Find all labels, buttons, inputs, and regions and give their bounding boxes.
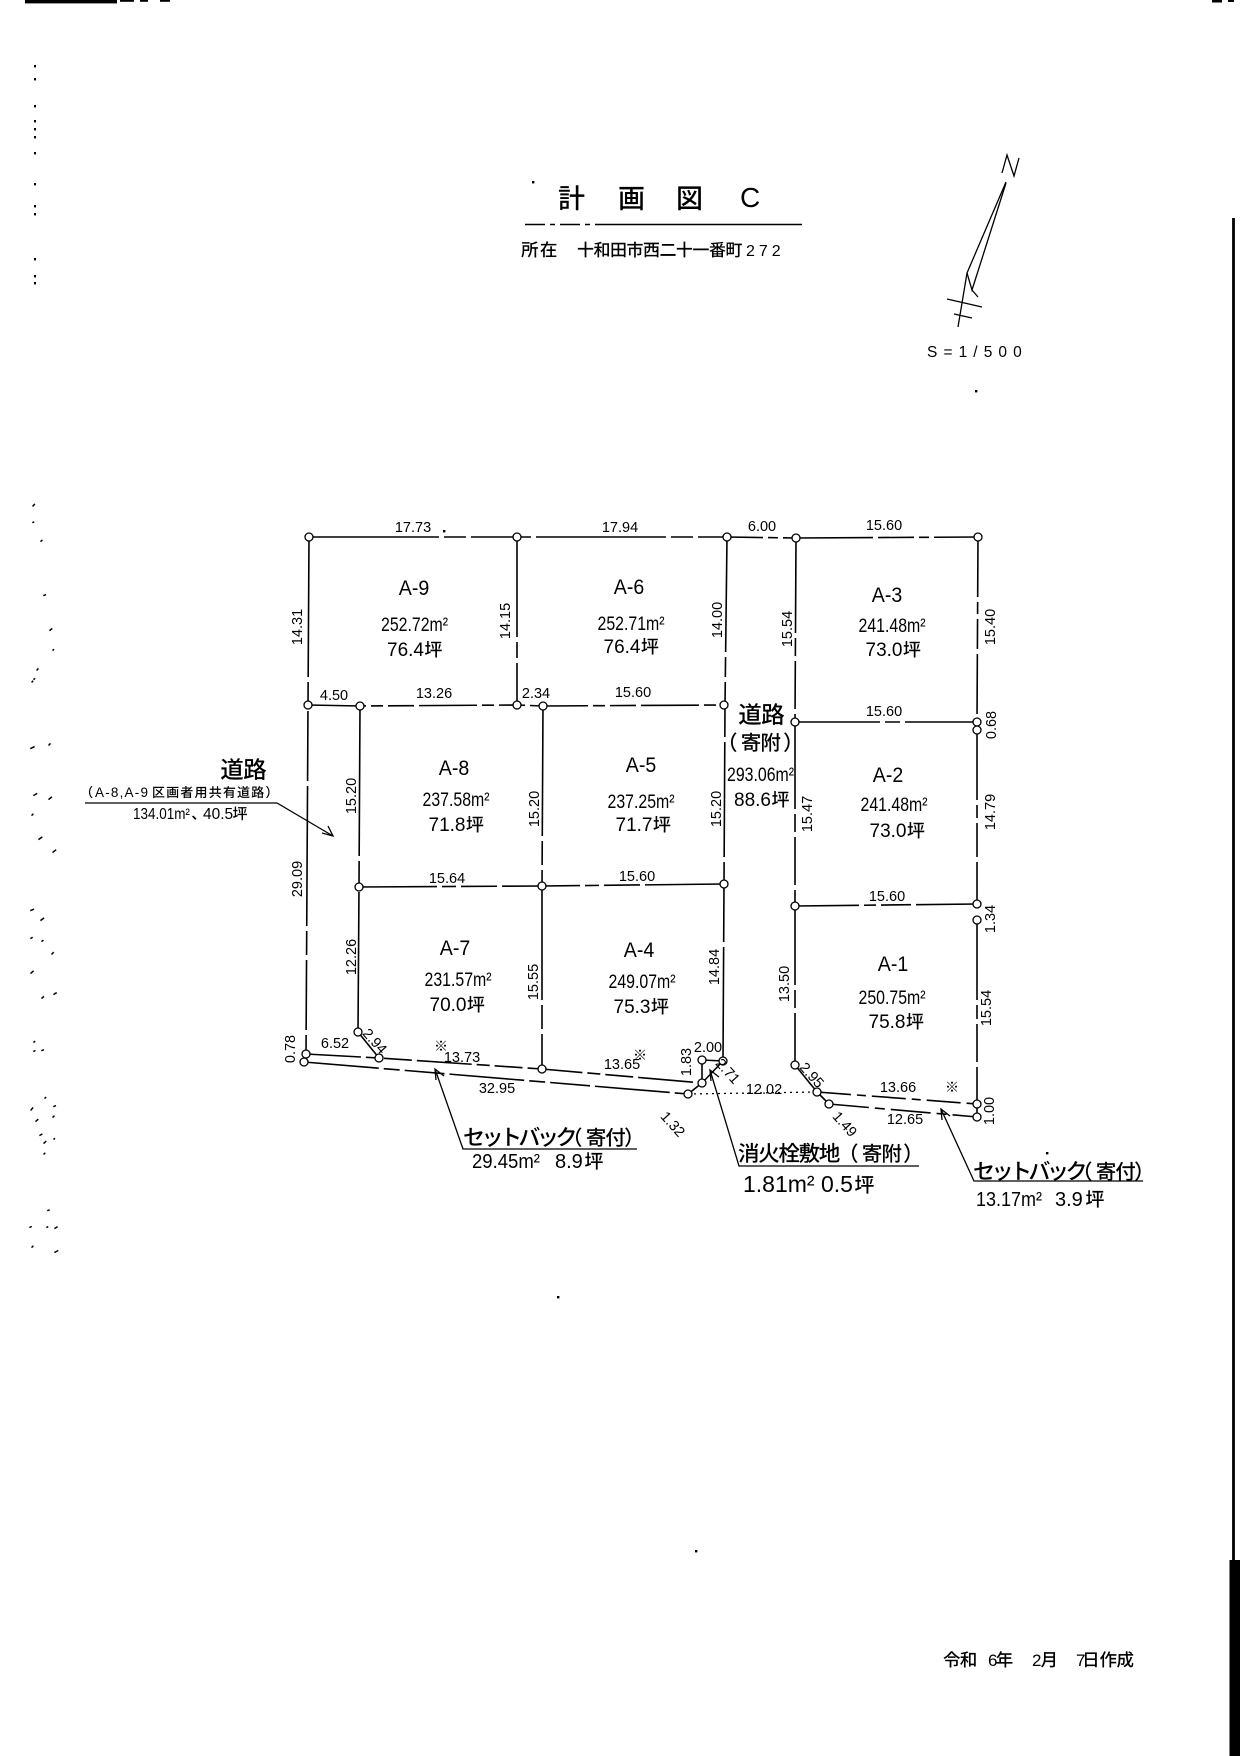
svg-text:14.84: 14.84 xyxy=(707,949,723,985)
svg-text:13.66: 13.66 xyxy=(880,1080,916,1096)
svg-text:15.54: 15.54 xyxy=(780,611,796,647)
svg-text:2.00: 2.00 xyxy=(694,1040,722,1056)
svg-text:71.8: 71.8 xyxy=(429,815,466,836)
svg-text:A-6: A-6 xyxy=(614,576,644,599)
svg-text:15.20: 15.20 xyxy=(344,778,360,814)
svg-text:2: 2 xyxy=(1032,1651,1041,1670)
svg-text:13.17m²: 13.17m² xyxy=(976,1189,1042,1211)
svg-text:29.45m²: 29.45m² xyxy=(472,1151,541,1173)
svg-text:A-9: A-9 xyxy=(399,577,429,600)
svg-text:13.65: 13.65 xyxy=(604,1057,640,1073)
svg-text:A-2: A-2 xyxy=(873,764,903,787)
svg-text:1.81m²: 1.81m² xyxy=(743,1171,815,1197)
svg-text:272: 272 xyxy=(746,243,785,260)
svg-text:15.54: 15.54 xyxy=(979,990,995,1026)
svg-text:14.79: 14.79 xyxy=(983,794,999,830)
svg-text:12.02: 12.02 xyxy=(746,1082,782,1098)
svg-text:75.8: 75.8 xyxy=(869,1012,906,1033)
svg-text:15.60: 15.60 xyxy=(869,889,905,905)
svg-text:A-7: A-7 xyxy=(440,937,470,960)
svg-text:237.58m²: 237.58m² xyxy=(423,789,490,811)
svg-text:3.9: 3.9 xyxy=(1055,1189,1083,1211)
svg-text:13.73: 13.73 xyxy=(444,1050,480,1066)
svg-text:40.5: 40.5 xyxy=(203,806,233,823)
svg-text:12.65: 12.65 xyxy=(887,1112,923,1128)
svg-text:14.00: 14.00 xyxy=(710,602,726,638)
svg-text:S=1/500: S=1/500 xyxy=(927,344,1028,361)
svg-text:A-8: A-8 xyxy=(439,757,469,780)
svg-text:15.60: 15.60 xyxy=(619,869,655,885)
svg-text:12.26: 12.26 xyxy=(344,939,360,975)
svg-text:8.9: 8.9 xyxy=(555,1151,583,1173)
svg-text:6.00: 6.00 xyxy=(748,519,776,535)
svg-text:249.07m²: 249.07m² xyxy=(609,971,676,993)
svg-text:17.73: 17.73 xyxy=(395,520,431,536)
svg-text:15.47: 15.47 xyxy=(800,796,816,832)
svg-text:2.34: 2.34 xyxy=(522,686,550,702)
svg-text:73.0: 73.0 xyxy=(866,640,903,661)
svg-text:4.50: 4.50 xyxy=(320,688,348,704)
svg-text:293.06m²: 293.06m² xyxy=(727,764,794,786)
svg-text:0.5: 0.5 xyxy=(821,1171,853,1197)
svg-text:6.52: 6.52 xyxy=(321,1036,349,1052)
svg-text:15.60: 15.60 xyxy=(866,704,902,720)
svg-text:252.72m²: 252.72m² xyxy=(381,614,448,636)
svg-text:15.20: 15.20 xyxy=(709,791,725,827)
svg-text:13.26: 13.26 xyxy=(416,686,452,702)
svg-text:6: 6 xyxy=(988,1651,997,1670)
svg-text:76.4: 76.4 xyxy=(387,640,424,661)
svg-text:237.25m²: 237.25m² xyxy=(608,791,675,813)
svg-text:17.94: 17.94 xyxy=(602,520,638,536)
svg-text:75.3: 75.3 xyxy=(614,997,651,1018)
svg-text:15.20: 15.20 xyxy=(527,791,543,827)
svg-text:A-3: A-3 xyxy=(872,584,902,607)
svg-text:15.60: 15.60 xyxy=(615,685,651,701)
svg-text:15.40: 15.40 xyxy=(983,609,999,645)
svg-text:0.68: 0.68 xyxy=(984,711,1000,739)
svg-text:C: C xyxy=(740,182,760,213)
svg-text:1.83: 1.83 xyxy=(679,1048,695,1076)
svg-text:15.60: 15.60 xyxy=(866,518,902,534)
svg-text:15.64: 15.64 xyxy=(429,871,465,887)
svg-text:134.01m²: 134.01m² xyxy=(133,806,190,823)
svg-text:32.95: 32.95 xyxy=(479,1081,515,1097)
svg-text:241.48m²: 241.48m² xyxy=(859,615,926,637)
svg-text:88.6: 88.6 xyxy=(734,790,771,811)
svg-text:7: 7 xyxy=(1076,1651,1085,1670)
svg-text:241.48m²: 241.48m² xyxy=(861,794,928,816)
svg-text:250.75m²: 250.75m² xyxy=(859,987,926,1009)
svg-text:1.00: 1.00 xyxy=(982,1097,998,1125)
svg-text:14.31: 14.31 xyxy=(290,609,306,645)
svg-text:73.0: 73.0 xyxy=(870,821,907,842)
svg-text:0.78: 0.78 xyxy=(283,1035,299,1063)
svg-text:231.57m²: 231.57m² xyxy=(425,969,492,991)
svg-text:252.71m²: 252.71m² xyxy=(598,613,665,635)
svg-text:76.4: 76.4 xyxy=(604,637,641,658)
svg-text:15.55: 15.55 xyxy=(526,964,542,1000)
svg-text:A-4: A-4 xyxy=(624,939,654,962)
svg-text:A-8,A-9: A-8,A-9 xyxy=(95,785,149,800)
svg-text:71.7: 71.7 xyxy=(616,815,653,836)
svg-text:A-1: A-1 xyxy=(878,953,908,976)
svg-text:70.0: 70.0 xyxy=(430,995,467,1016)
svg-text:29.09: 29.09 xyxy=(290,861,306,897)
svg-text:13.50: 13.50 xyxy=(777,966,793,1002)
svg-text:1.34: 1.34 xyxy=(983,905,999,933)
svg-text:14.15: 14.15 xyxy=(498,603,514,639)
svg-text:A-5: A-5 xyxy=(626,754,656,777)
